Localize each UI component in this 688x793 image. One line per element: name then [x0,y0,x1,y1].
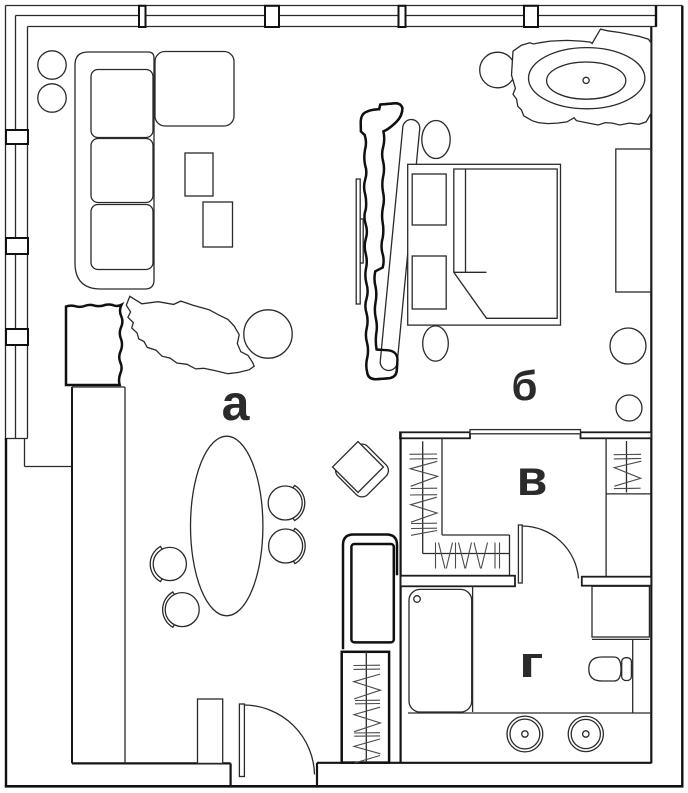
svg-text:в: в [517,450,548,506]
svg-text:б: б [512,362,538,409]
svg-text:а: а [222,375,251,431]
svg-text:г: г [519,638,544,687]
